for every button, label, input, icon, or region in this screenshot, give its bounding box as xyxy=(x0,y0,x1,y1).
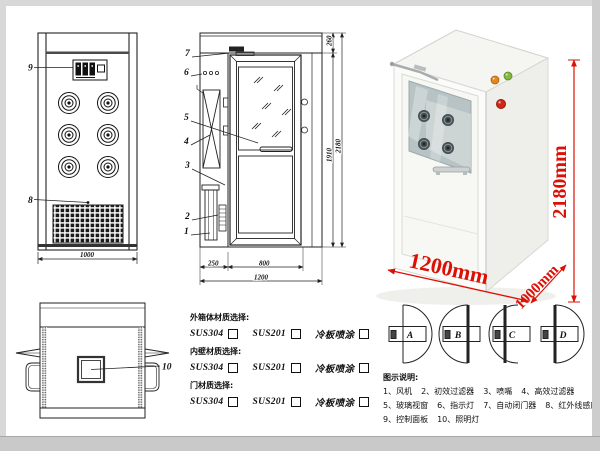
svg-text:260: 260 xyxy=(326,35,334,47)
part-label-9: 9 xyxy=(28,64,73,74)
legend-item: 3、喷嘴 xyxy=(483,387,512,397)
svg-text:1910: 1910 xyxy=(326,148,334,163)
nozzle-icon xyxy=(59,157,80,178)
door-handle xyxy=(260,147,292,152)
height-dimensions: 260 1910 2180 xyxy=(303,33,346,247)
material-option-label: SUS304 xyxy=(190,329,223,339)
product-photo: 2180mm 1200mm 1000mm xyxy=(378,20,590,316)
top-view-drawing: 10 xyxy=(13,293,188,433)
legend-item: 2、初效过滤器 xyxy=(421,387,474,397)
front-view-drawing: 9 8 1000 xyxy=(25,23,175,273)
control-panel xyxy=(73,60,107,80)
svg-text:C: C xyxy=(509,331,516,341)
hinge xyxy=(224,126,229,135)
door-option-a[interactable]: A xyxy=(389,305,432,363)
svg-text:D: D xyxy=(559,331,567,341)
door-option-b[interactable]: B xyxy=(439,305,480,363)
door-option-c[interactable]: C xyxy=(489,305,530,363)
nozzles xyxy=(59,93,119,178)
width-dimensions: 250 800 1200 xyxy=(200,247,322,285)
red-button xyxy=(496,99,505,108)
material-group-title: 内壁材质选择: xyxy=(190,347,374,356)
svg-text:8: 8 xyxy=(28,196,33,206)
svg-text:3: 3 xyxy=(184,161,190,171)
structure-outline xyxy=(200,33,322,247)
material-option-label: 冷板喷涂 xyxy=(315,327,354,341)
width-dimension: 1000 xyxy=(38,251,137,264)
material-checkbox[interactable] xyxy=(228,329,238,339)
nozzle-icon xyxy=(98,125,119,146)
svg-text:2180: 2180 xyxy=(335,139,343,155)
material-option-label: 冷板喷涂 xyxy=(315,395,354,409)
svg-text:B: B xyxy=(454,331,461,341)
svg-text:9: 9 xyxy=(28,64,33,74)
material-option-label: SUS201 xyxy=(252,397,285,407)
nozzle-icon xyxy=(59,93,80,114)
door xyxy=(224,55,308,245)
svg-text:10: 10 xyxy=(162,363,172,373)
fan-unit xyxy=(202,185,219,240)
material-group: 门材质选择: SUS304 SUS201 冷板喷涂 xyxy=(190,381,374,409)
material-checkbox[interactable] xyxy=(291,329,301,339)
indicator-lights xyxy=(203,71,218,74)
parts-legend: 图示说明: 1、风机 2、初效过滤器 3、喷嘴 4、高效过滤器 5、玻璃视窗 6… xyxy=(383,372,598,429)
door-closer xyxy=(229,47,254,56)
svg-text:1: 1 xyxy=(184,227,189,237)
material-group-title: 外箱体材质选择: xyxy=(190,313,374,322)
material-group: 内壁材质选择: SUS304 SUS201 冷板喷涂 xyxy=(190,347,374,375)
svg-text:800: 800 xyxy=(259,260,270,268)
nozzle-icon xyxy=(59,125,80,146)
booth-door xyxy=(390,62,478,274)
material-checkbox[interactable] xyxy=(291,363,301,373)
hinge xyxy=(302,127,308,133)
legend-item: 4、高效过滤器 xyxy=(521,387,574,397)
svg-text:2180mm: 2180mm xyxy=(549,145,571,219)
svg-text:5: 5 xyxy=(184,113,189,123)
material-option-label: SUS304 xyxy=(190,363,223,373)
material-checkbox[interactable] xyxy=(228,363,238,373)
legend-item: 7、自动闭门器 xyxy=(483,401,536,411)
material-group: 外箱体材质选择: SUS304 SUS201 冷板喷涂 xyxy=(190,313,374,341)
material-option-label: 冷板喷涂 xyxy=(315,361,354,375)
material-options: 外箱体材质选择: SUS304 SUS201 冷板喷涂 内壁材质选择: SUS3… xyxy=(190,313,374,415)
door-lower-panel xyxy=(239,156,293,233)
svg-text:250: 250 xyxy=(207,260,219,268)
svg-text:4: 4 xyxy=(183,137,189,147)
svg-text:6: 6 xyxy=(184,68,189,78)
svg-text:2: 2 xyxy=(184,212,190,222)
legend-item: 1、风机 xyxy=(383,387,412,397)
svg-text:A: A xyxy=(406,331,413,341)
hinge xyxy=(224,98,229,107)
green-light xyxy=(504,72,512,80)
svg-text:1000: 1000 xyxy=(80,251,95,259)
legend-item: 5、玻璃视窗 xyxy=(383,401,428,411)
legend-item: 9、控制面板 xyxy=(383,415,428,425)
air-grille xyxy=(53,205,123,243)
material-checkbox[interactable] xyxy=(359,363,369,373)
light-bar xyxy=(46,52,129,55)
frame-edge xyxy=(0,436,600,451)
pre-filter xyxy=(219,205,226,231)
legend-item: 6、指示灯 xyxy=(437,401,474,411)
booth-side-face xyxy=(486,58,548,292)
material-checkbox[interactable] xyxy=(359,329,369,339)
material-checkbox[interactable] xyxy=(359,397,369,407)
material-group-title: 门材质选择: xyxy=(190,381,374,390)
material-checkbox[interactable] xyxy=(291,397,301,407)
frame-edge xyxy=(0,0,6,450)
material-option-label: SUS201 xyxy=(252,363,285,373)
material-option-label: SUS304 xyxy=(190,397,223,407)
glass-hatch xyxy=(252,77,291,137)
base xyxy=(38,244,137,247)
frame-edge xyxy=(592,0,600,450)
svg-text:7: 7 xyxy=(185,49,191,59)
nozzle-icon xyxy=(98,93,119,114)
legend-title: 图示说明: xyxy=(383,372,598,383)
door-option-d[interactable]: D xyxy=(541,305,584,363)
side-view-drawing: 7 6 5 4 3 2 1 260 1910 2180 250 800 1200 xyxy=(172,15,362,290)
material-option-label: SUS201 xyxy=(252,329,285,339)
material-checkbox[interactable] xyxy=(228,397,238,407)
svg-text:1200: 1200 xyxy=(254,274,269,282)
orange-light xyxy=(491,76,499,84)
hinge xyxy=(302,99,308,105)
door-wings xyxy=(16,349,169,391)
door-direction-options: A B C D xyxy=(383,300,588,370)
frame-edge xyxy=(0,0,600,6)
nozzle-icon xyxy=(98,157,119,178)
legend-item: 10、照明灯 xyxy=(437,415,479,425)
